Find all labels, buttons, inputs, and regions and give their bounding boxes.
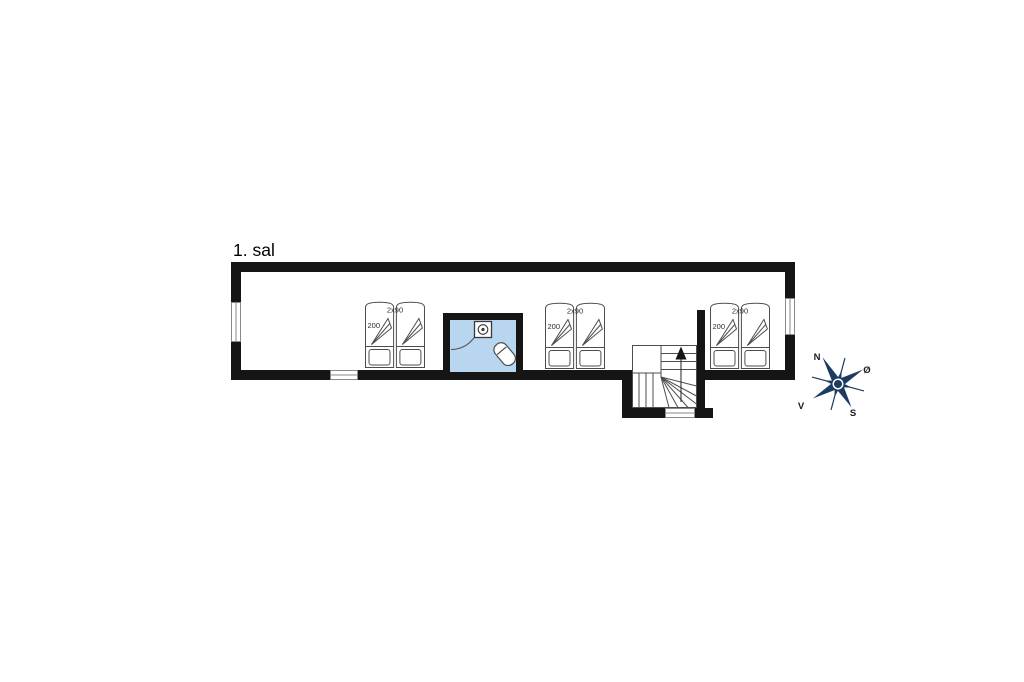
compass-rose: N Ø S V: [797, 343, 876, 422]
washing-machine-icon: [475, 322, 492, 338]
wall-bottom-right: [703, 370, 795, 380]
wall-stairwell-bottom-left: [622, 408, 665, 418]
window-south: [331, 371, 358, 380]
floorplan-svg: 1. sal: [0, 0, 1024, 682]
wall-stair-divider: [697, 310, 705, 413]
compass-south-label: S: [850, 408, 856, 419]
bed-width-label: 2x90: [732, 307, 748, 316]
bed-length-label: 200: [368, 321, 381, 330]
bed-width-label: 2x90: [567, 307, 583, 316]
floor-title: 1. sal: [233, 240, 275, 260]
wall-top: [231, 262, 795, 272]
beds: 2x90 200 2x90 200 2x90 200: [366, 302, 770, 368]
compass-north-label: N: [814, 352, 821, 363]
compass-star-icon: [797, 343, 876, 422]
wall-bottom-left: [231, 370, 622, 380]
wall-left-upper: [231, 262, 241, 302]
window-stairwell: [666, 409, 695, 418]
bathroom: [450, 320, 518, 372]
bed-length-label: 200: [713, 322, 726, 331]
bed-length-label: 200: [548, 322, 561, 331]
window-west: [232, 303, 241, 342]
floorplan-page: 1. sal: [0, 0, 1024, 682]
compass-east-label: Ø: [863, 365, 870, 376]
wall-bathroom-right: [516, 331, 523, 372]
window-east: [786, 299, 795, 335]
compass-west-label: V: [798, 401, 805, 412]
wall-right-upper: [785, 262, 795, 298]
bed-width-label: 2x90: [387, 306, 403, 315]
wall-bathroom-left: [443, 313, 450, 380]
staircase: [633, 346, 697, 408]
